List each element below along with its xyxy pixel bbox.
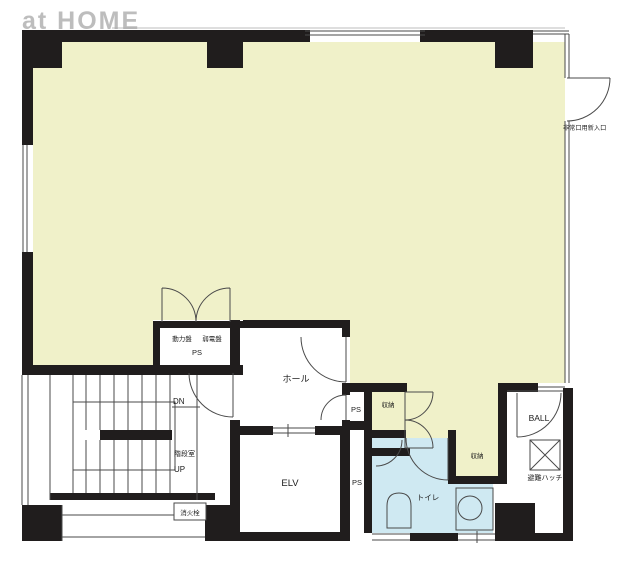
stair-landing-bar: [100, 430, 172, 440]
escape-hatch-cross-icon: [530, 440, 560, 470]
label-balcony: BALL: [529, 413, 550, 423]
label-hatch: 避難ハッチ: [528, 473, 563, 482]
label-storage-right: 収納: [471, 451, 484, 460]
watermark: at HOME: [22, 7, 140, 35]
label-toilet: トイレ: [417, 493, 440, 502]
room-main: [33, 42, 565, 320]
door-hall-to-stairs: [189, 373, 233, 417]
room-toilet-ext: [448, 483, 493, 533]
elevator-door-mark: [273, 424, 315, 437]
door-emergency-exit: [567, 78, 610, 121]
room-main-lower-left: [33, 320, 153, 368]
label-hall-ps: PS: [351, 405, 361, 414]
floor-plan: 動力盤 弱電盤 PS ホール DN 階段室 UP 消火栓 ELV PS PS 収…: [0, 0, 640, 576]
room-fills: [33, 42, 565, 476]
label-hydrant: 消火栓: [180, 508, 200, 517]
label-emergency-entrance: 非常口用新入口: [563, 124, 606, 132]
stair-treads-lower: [86, 440, 170, 493]
label-stair-up: UP: [174, 465, 185, 474]
label-panel-ps: PS: [192, 348, 202, 357]
label-panel-power: 動力盤: [172, 334, 192, 343]
label-hall: ホール: [282, 374, 309, 384]
label-shaft-ps: PS: [352, 478, 362, 487]
room-main-lower-right: [350, 320, 565, 383]
door-hall-ps: [321, 395, 346, 420]
label-storage-left: 収納: [382, 400, 395, 409]
label-stair-dn: DN: [173, 397, 185, 406]
label-stair-room: 階段室: [174, 449, 195, 458]
floor-plan-canvas: 動力盤 弱電盤 PS ホール DN 階段室 UP 消火栓 ELV PS PS 収…: [0, 0, 640, 576]
stair-bottom-bar: [50, 493, 215, 500]
label-panel-lowvolt: 弱電盤: [202, 334, 222, 343]
label-elevator: ELV: [281, 478, 299, 489]
room-corridor-finger: [405, 383, 498, 438]
